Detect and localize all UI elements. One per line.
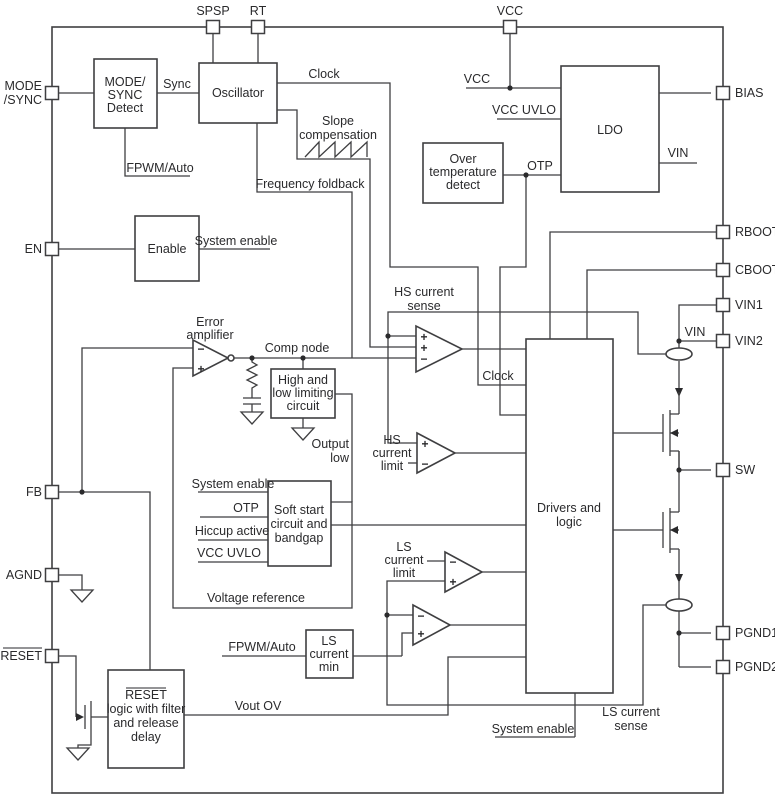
label-error-amplifier: amplifier bbox=[186, 328, 233, 342]
svg-text:−: − bbox=[420, 352, 427, 366]
label-hs-current-limit: limit bbox=[381, 459, 404, 473]
label-clock2: Clock bbox=[482, 369, 514, 383]
pin-label-cboot: CBOOT bbox=[735, 263, 775, 277]
block-label: temperature bbox=[429, 165, 496, 179]
pin-label-spsp: SPSP bbox=[196, 4, 229, 18]
block-label: Detect bbox=[107, 101, 144, 115]
label-hs-current-sense: sense bbox=[407, 299, 440, 313]
pin-fb bbox=[46, 486, 59, 499]
label-vcc-uvlo: VCC UVLO bbox=[492, 103, 556, 117]
label-otp: OTP bbox=[233, 501, 259, 515]
pin-pgnd1 bbox=[717, 627, 730, 640]
label-ls-current-limit: current bbox=[385, 553, 424, 567]
pin-label-vcc: VCC bbox=[497, 4, 523, 18]
svg-text:−: − bbox=[421, 457, 428, 471]
pin-label-mode-sync: /SYNC bbox=[4, 93, 42, 107]
label-vcc-uvlo: VCC UVLO bbox=[197, 546, 261, 560]
pin-vin2 bbox=[717, 335, 730, 348]
label-slope-compensation: compensation bbox=[299, 128, 377, 142]
block-label: Soft start bbox=[274, 503, 325, 517]
block-label: low limiting bbox=[272, 386, 333, 400]
label-slope-compensation: Slope bbox=[322, 114, 354, 128]
pin-rboot bbox=[717, 226, 730, 239]
svg-text:+: + bbox=[449, 575, 456, 589]
block-label: LDO bbox=[597, 123, 623, 137]
pin-agnd bbox=[46, 569, 59, 582]
label-system-enable: System enable bbox=[195, 234, 278, 248]
label-voltage-reference: Voltage reference bbox=[207, 591, 305, 605]
pin-mode-sync bbox=[46, 87, 59, 100]
label-otp: OTP bbox=[527, 159, 553, 173]
svg-text:+: + bbox=[421, 437, 428, 451]
pin-reset bbox=[46, 650, 59, 663]
label-frequency-foldback: Frequency foldback bbox=[255, 177, 365, 191]
block-label: current bbox=[310, 647, 349, 661]
svg-text:+: + bbox=[417, 627, 424, 641]
pin-pgnd2 bbox=[717, 661, 730, 674]
label-vout-ov: Vout OV bbox=[235, 699, 282, 713]
block-label: detect bbox=[446, 178, 481, 192]
pin-label-bias: BIAS bbox=[735, 86, 764, 100]
pin-cboot bbox=[717, 264, 730, 277]
block-label: High and bbox=[278, 373, 328, 387]
block-label: MODE/ bbox=[105, 75, 147, 89]
pin-rt bbox=[252, 21, 265, 34]
pin-label-rt: RT bbox=[250, 4, 267, 18]
label-system-enable: System enable bbox=[192, 477, 275, 491]
svg-text:−: − bbox=[449, 555, 456, 569]
pin-label-reset: RESET bbox=[0, 649, 42, 663]
block-label: logic with filter bbox=[107, 702, 186, 716]
label-error-amplifier: Error bbox=[196, 315, 224, 329]
block-label: logic bbox=[556, 515, 582, 529]
pin-label-rboot: RBOOT bbox=[735, 225, 775, 239]
pin-label-mode-sync: MODE bbox=[5, 79, 43, 93]
label-vcc: VCC bbox=[464, 72, 490, 86]
hs-current-sense-icon bbox=[666, 348, 692, 360]
label-vin: VIN bbox=[668, 146, 689, 160]
label-hs-current-limit: current bbox=[373, 446, 412, 460]
label-ls-current-limit: LS bbox=[396, 540, 411, 554]
pin-vcc bbox=[504, 21, 517, 34]
label-hs-current-sense: HS current bbox=[394, 285, 454, 299]
label-fpwm-auto: FPWM/Auto bbox=[228, 640, 295, 654]
block-label: delay bbox=[131, 730, 162, 744]
ls-current-sense-icon bbox=[666, 599, 692, 611]
label-hiccup-active: Hiccup active bbox=[195, 524, 269, 538]
label-system-enable: System enable bbox=[492, 722, 575, 736]
block-label: min bbox=[319, 660, 339, 674]
pin-label-vin1: VIN1 bbox=[735, 298, 763, 312]
block-label: Over bbox=[449, 152, 476, 166]
pin-en bbox=[46, 243, 59, 256]
pin-sw bbox=[717, 464, 730, 477]
block-label: circuit bbox=[287, 399, 320, 413]
pin-label-vin2: VIN2 bbox=[735, 334, 763, 348]
block-label: RESET bbox=[125, 688, 167, 702]
block-label: bandgap bbox=[275, 531, 324, 545]
pin-spsp bbox=[207, 21, 220, 34]
svg-text:−: − bbox=[197, 342, 204, 356]
block-label: Drivers and bbox=[537, 501, 601, 515]
label-hs-current-limit: HS bbox=[383, 433, 400, 447]
pin-label-sw: SW bbox=[735, 463, 755, 477]
pin-label-agnd: AGND bbox=[6, 568, 42, 582]
block-label: LS bbox=[321, 634, 336, 648]
block-label: circuit and bbox=[271, 517, 328, 531]
label-output-low: low bbox=[330, 451, 350, 465]
label-clock: Clock bbox=[308, 67, 340, 81]
pin-label-pgnd2: PGND2 bbox=[735, 660, 775, 674]
label-ls-current-sense: LS current bbox=[602, 705, 660, 719]
pin-vin1 bbox=[717, 299, 730, 312]
block-label: Enable bbox=[148, 242, 187, 256]
label-output-low: Output bbox=[311, 437, 349, 451]
svg-text:+: + bbox=[197, 362, 204, 376]
block-label: SYNC bbox=[108, 88, 143, 102]
block-label: Oscillator bbox=[212, 86, 264, 100]
pin-label-fb: FB bbox=[26, 485, 42, 499]
block-label: and release bbox=[113, 716, 178, 730]
label-sync: Sync bbox=[163, 77, 191, 91]
label-fpwm-auto: FPWM/Auto bbox=[126, 161, 193, 175]
label-ls-current-sense: sense bbox=[614, 719, 647, 733]
pin-label-pgnd1: PGND1 bbox=[735, 626, 775, 640]
functional-block-diagram: MODE/ SYNC Detect Oscillator Enable LDO … bbox=[0, 0, 775, 798]
label-comp-node: Comp node bbox=[265, 341, 330, 355]
pin-label-en: EN bbox=[25, 242, 42, 256]
label-vin: VIN bbox=[685, 325, 706, 339]
label-ls-current-limit: limit bbox=[393, 566, 416, 580]
svg-text:−: − bbox=[417, 609, 424, 623]
pin-bias bbox=[717, 87, 730, 100]
diagram-canvas: MODE/ SYNC Detect Oscillator Enable LDO … bbox=[0, 0, 775, 798]
